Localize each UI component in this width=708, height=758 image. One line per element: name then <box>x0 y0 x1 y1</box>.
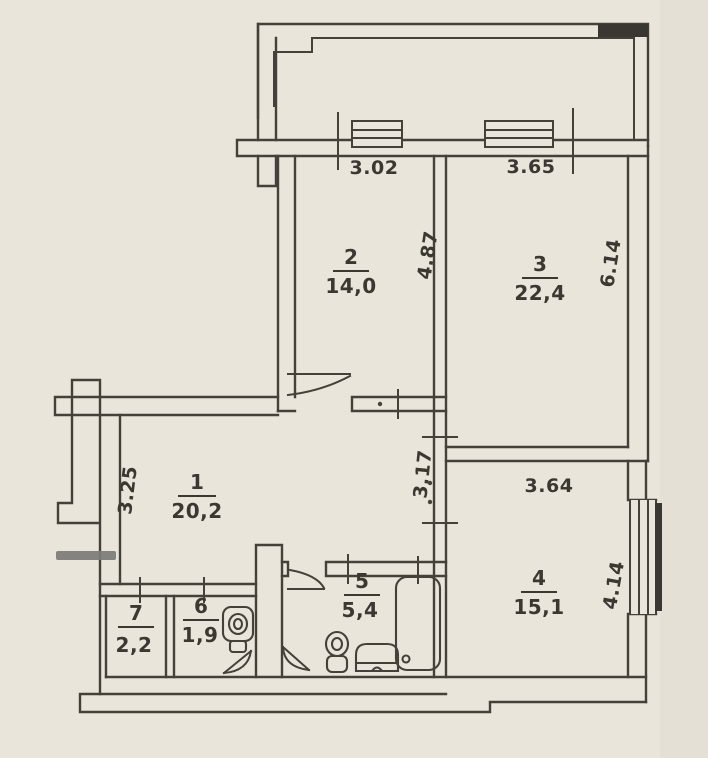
room-number: 1 <box>190 470 204 494</box>
dim-room4-width: 3.64 <box>525 475 574 497</box>
room-number: 4 <box>532 566 546 590</box>
room-area: 15,1 <box>513 595 564 619</box>
dimension-dot <box>428 500 432 504</box>
room-area: 2,2 <box>116 633 153 657</box>
floor-plan-photo: 3.02 3.65 4.87 6.14 3.25 3.17 3.64 4.14 … <box>0 0 708 758</box>
room-number: 2 <box>344 245 358 269</box>
dim-top-right: 3.65 <box>507 156 556 178</box>
room-area: 22,4 <box>514 281 565 305</box>
dim-top-left: 3.02 <box>350 157 399 179</box>
window-room4 <box>630 500 662 614</box>
window-room2 <box>352 121 402 147</box>
room-number: 6 <box>194 594 208 618</box>
room-area: 20,2 <box>171 499 222 523</box>
room-area: 14,0 <box>325 274 376 298</box>
room-number: 3 <box>533 252 547 276</box>
room-area: 5,4 <box>342 598 379 622</box>
room-area: 1,9 <box>182 623 219 647</box>
room-number: 5 <box>355 569 369 593</box>
room-number: 7 <box>129 601 143 625</box>
balcony-corner-wall <box>598 24 648 37</box>
window-glass <box>630 500 656 614</box>
dimension-dot <box>378 402 382 406</box>
paper-shade <box>660 0 708 758</box>
window-glass <box>485 121 553 147</box>
window-outer-wall <box>655 503 662 611</box>
window-room3 <box>485 121 553 147</box>
highlight-mark <box>56 551 116 560</box>
window-glass <box>352 121 402 147</box>
floor-plan-drawing: 3.02 3.65 4.87 6.14 3.25 3.17 3.64 4.14 … <box>0 0 708 758</box>
